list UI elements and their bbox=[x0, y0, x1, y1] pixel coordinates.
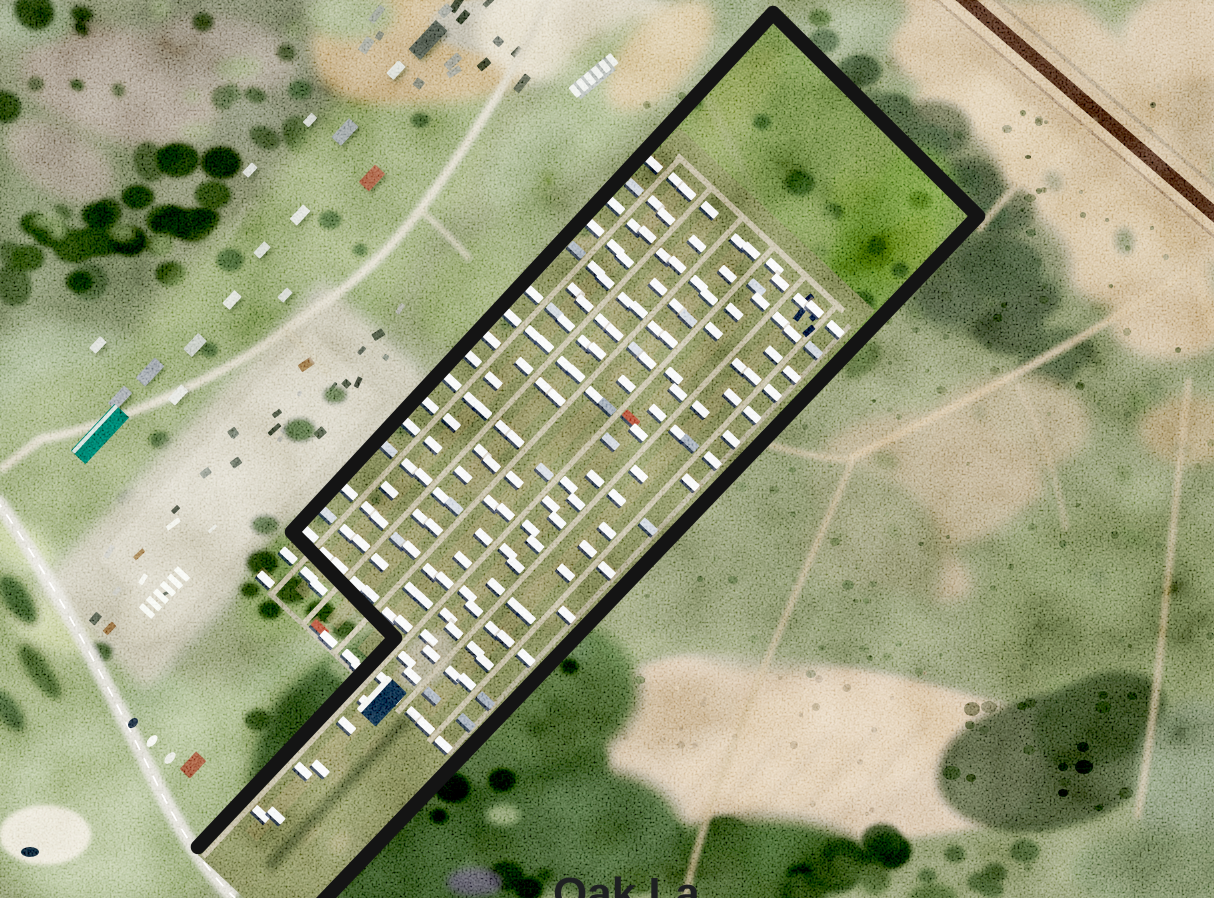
svg-text:Oak La: Oak La bbox=[553, 869, 700, 898]
